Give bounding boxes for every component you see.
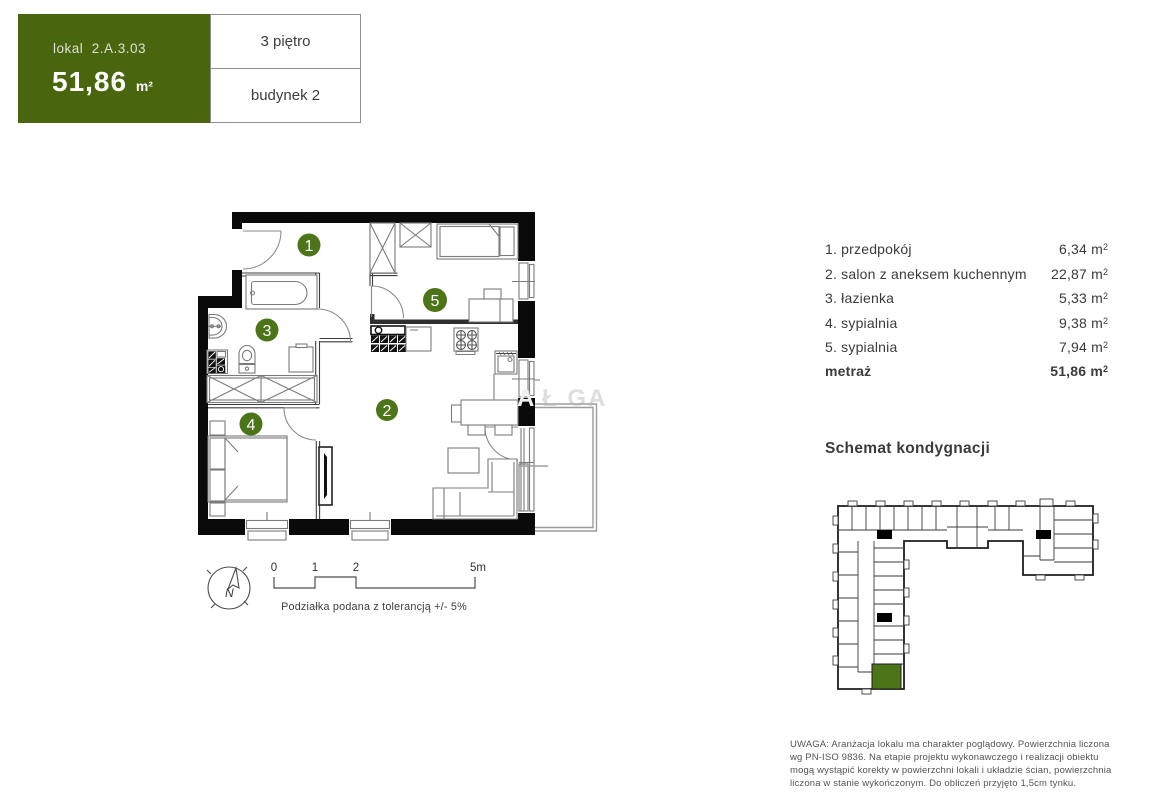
svg-text:2: 2 [353,562,359,574]
svg-text:N: N [225,586,234,600]
svg-text:5: 5 [431,293,440,310]
svg-text:1: 1 [312,562,318,574]
svg-text:Ł GA: Ł GA [542,385,607,412]
svg-text:4: 4 [247,417,256,434]
svg-text:Podziałka podana z tolerancją: Podziałka podana z tolerancją +/- 5% [281,601,467,613]
svg-text:0: 0 [271,562,277,574]
svg-text:A: A [517,385,535,412]
svg-text:5m: 5m [470,562,486,574]
svg-text:1: 1 [305,238,314,255]
svg-text:2: 2 [383,403,392,420]
svg-text:3: 3 [263,323,272,340]
